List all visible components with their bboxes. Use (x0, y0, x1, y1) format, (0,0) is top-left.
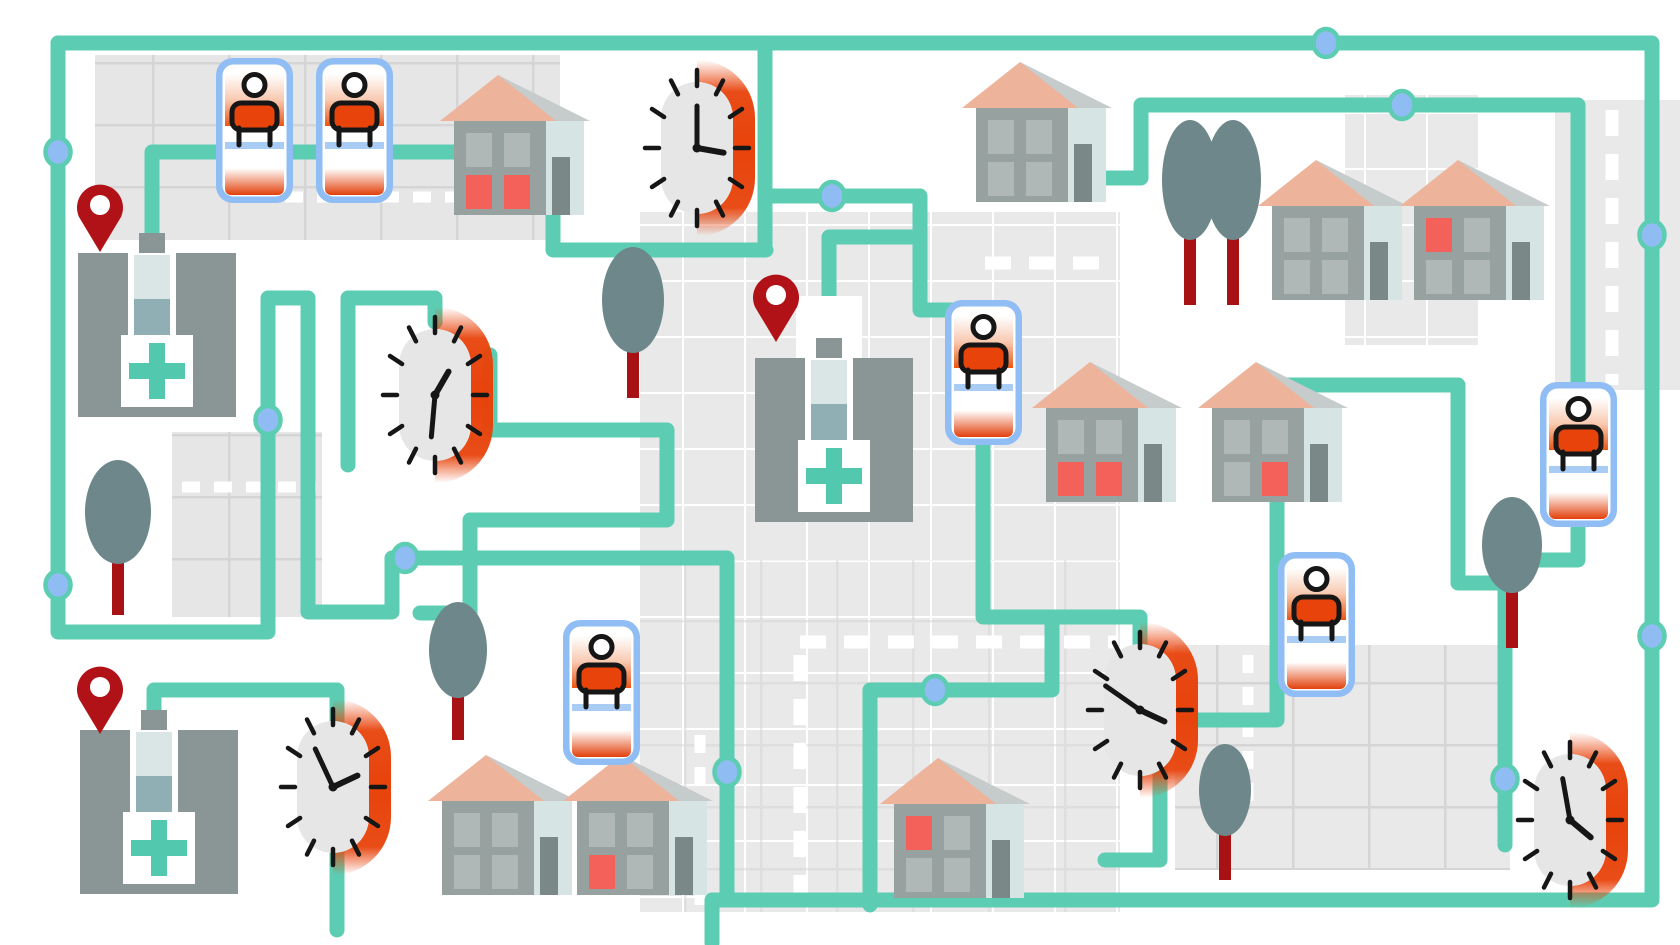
bed-far-right (1540, 382, 1617, 527)
route-node (820, 182, 845, 210)
bed-right (1278, 552, 1355, 697)
tree (429, 602, 487, 740)
clock-bottom-right (1518, 732, 1628, 908)
route-node (715, 758, 740, 786)
route-node (46, 138, 71, 166)
route-node (393, 544, 418, 572)
illustration-canvas (0, 0, 1680, 945)
route-node (1390, 91, 1415, 119)
hospital-top-left (78, 233, 236, 417)
lit-window (589, 855, 615, 889)
map-illustration (0, 0, 1680, 945)
route-node (1493, 765, 1518, 793)
route-node (46, 571, 71, 599)
lit-window (1262, 462, 1288, 496)
city-block-left (172, 432, 322, 617)
hospital-center (755, 338, 913, 522)
tree (1482, 497, 1542, 648)
tree (85, 460, 151, 615)
house-bottom-left-1 (428, 755, 578, 895)
tree (1205, 120, 1261, 305)
route-node (1640, 622, 1665, 650)
bed-center (945, 300, 1022, 445)
bed-center-bottom (563, 620, 640, 765)
clock-top-middle (645, 60, 755, 236)
route-node (1314, 29, 1339, 57)
lit-window (504, 175, 530, 209)
lit-window (1058, 462, 1084, 496)
house-top-center (962, 62, 1112, 202)
clock-bottom-left (281, 699, 391, 875)
lit-window (1096, 462, 1122, 496)
bed-top-left-1 (216, 58, 293, 203)
clock-mid-left (383, 307, 493, 483)
pin-hospital-bottom-left (77, 667, 123, 734)
lit-window (1426, 218, 1452, 252)
route-node (256, 406, 281, 434)
hospital-bottom-left (80, 710, 238, 894)
pin-hospital-top-left (77, 185, 123, 252)
lit-window (466, 175, 492, 209)
route-node (923, 676, 948, 704)
route-node (1640, 221, 1665, 249)
bed-top-left-2 (316, 58, 393, 203)
lit-window (906, 816, 932, 850)
